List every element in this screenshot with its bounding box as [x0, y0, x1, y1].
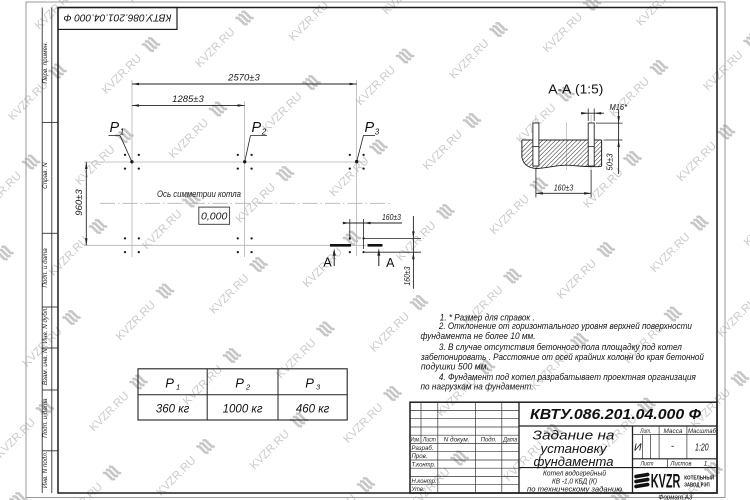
svg-text:по техническому заданию: по техническому заданию	[527, 485, 622, 494]
svg-text:Дата: Дата	[502, 436, 517, 443]
svg-text:1: 1	[704, 461, 708, 468]
svg-text:KVZR.RU: KVZR.RU	[73, 143, 117, 187]
svg-text:КВТУ.086.201.04.000 Ф: КВТУ.086.201.04.000 Ф	[530, 407, 702, 423]
svg-text:ЗАВОД РЭП: ЗАВОД РЭП	[684, 482, 710, 488]
svg-text:KVZR.RU: KVZR.RU	[648, 231, 692, 275]
svg-text:P: P	[165, 375, 174, 390]
svg-text:KVZR.RU: KVZR.RU	[608, 75, 652, 119]
svg-text:1: 1	[176, 382, 180, 391]
svg-text:KVZR.RU: KVZR.RU	[47, 234, 91, 278]
svg-text:подушки 500 мм.: подушки 500 мм.	[421, 362, 489, 372]
svg-text:KVZR.RU: KVZR.RU	[87, 390, 131, 434]
svg-text:фундамента: фундамента	[534, 454, 614, 469]
svg-text:360 кг: 360 кг	[156, 404, 190, 416]
svg-text:А: А	[386, 256, 395, 270]
svg-text:P: P	[305, 375, 314, 390]
svg-text:Пров.: Пров.	[412, 453, 428, 460]
svg-text:Формат А3: Формат А3	[658, 492, 692, 500]
svg-text:1:20: 1:20	[695, 442, 709, 454]
svg-text:3: 3	[316, 382, 321, 391]
svg-text:2570±3: 2570±3	[227, 73, 260, 84]
svg-text:2. Отклонение от горизонтал: 2. Отклонение от горизонтального уровня …	[438, 321, 692, 331]
svg-text:0,000: 0,000	[201, 211, 227, 223]
svg-text:Инв. N подл.: Инв. N подл.	[41, 451, 49, 488]
svg-text:KVZR.RU: KVZR.RU	[541, 11, 585, 55]
svg-text:KVZR.RU: KVZR.RU	[6, 79, 50, 123]
svg-text:KVZR.RU: KVZR.RU	[488, 193, 532, 237]
svg-text:KVZR.RU: KVZR.RU	[154, 454, 198, 498]
svg-text:Утв.: Утв.	[411, 486, 425, 493]
svg-text:KVZR.RU: KVZR.RU	[248, 428, 292, 472]
svg-text:-: -	[671, 441, 674, 452]
svg-text:Подп. и дата: Подп. и дата	[41, 248, 49, 288]
svg-text:50±3: 50±3	[605, 153, 615, 170]
svg-text:KVZR.RU: KVZR.RU	[167, 117, 211, 161]
svg-text:Ось симметрии котла: Ось симметрии котла	[157, 189, 241, 200]
svg-text:А: А	[323, 256, 332, 270]
svg-text:160±3: 160±3	[382, 212, 401, 222]
svg-text:P: P	[365, 120, 375, 136]
svg-text:KVZR.RU: KVZR.RU	[114, 299, 158, 343]
svg-text:2: 2	[245, 382, 251, 391]
svg-text:KVZR.RU: KVZR.RU	[368, 310, 412, 354]
svg-text:Инв. N дубл.: Инв. N дубл.	[41, 307, 49, 343]
svg-text:KVZR.RU: KVZR.RU	[100, 52, 144, 96]
svg-text:KVZR.RU: KVZR.RU	[555, 257, 599, 301]
svg-text:Н.контр.: Н.контр.	[412, 478, 437, 485]
svg-text:KVZR.RU: KVZR.RU	[207, 272, 251, 316]
svg-text:А-А (1:5): А-А (1:5)	[548, 83, 603, 97]
svg-text:4. Фундамент под котел раз: 4. Фундамент под котел разрабатывает про…	[439, 372, 696, 382]
svg-text:3: 3	[375, 127, 380, 136]
svg-text:N докум.: N докум.	[444, 435, 470, 443]
svg-text:Взам. инв. N: Взам. инв. N	[42, 348, 49, 385]
svg-text:KVZR.RU: KVZR.RU	[0, 416, 38, 460]
svg-text:P: P	[110, 120, 120, 136]
svg-text:KVZR: KVZR	[651, 471, 681, 492]
svg-text:по нагрузкам на фундамент.: по нагрузкам на фундамент.	[421, 382, 534, 392]
svg-text:KVZR.RU: KVZR.RU	[126, 0, 170, 6]
svg-text:960±3: 960±3	[74, 189, 85, 216]
svg-text:Листов: Листов	[670, 461, 692, 468]
svg-text:забетонировать . Расстояние: забетонировать . Расстояние от осей край…	[420, 352, 704, 362]
svg-text:KVZR.RU: KVZR.RU	[341, 401, 385, 445]
svg-text:Разраб.: Разраб.	[412, 444, 434, 452]
svg-text:Масса: Масса	[664, 428, 683, 435]
svg-text:160±3: 160±3	[554, 182, 574, 192]
svg-text:1: 1	[120, 127, 124, 136]
svg-text:KVZR.RU: KVZR.RU	[701, 49, 745, 93]
svg-text:KVZR.RU: KVZR.RU	[380, 0, 424, 17]
svg-text:Лист: Лист	[422, 436, 436, 443]
svg-text:KVZR.RU: KVZR.RU	[287, 0, 331, 44]
svg-text:KVZR.RU: KVZR.RU	[260, 90, 304, 134]
svg-text:Изм.: Изм.	[411, 436, 421, 443]
svg-text:KVZR.RU: KVZR.RU	[421, 128, 465, 172]
svg-text:KVZR.RU: KVZR.RU	[634, 0, 678, 29]
svg-text:P: P	[235, 375, 244, 390]
svg-text:160±3: 160±3	[402, 266, 412, 285]
svg-text:Масштаб: Масштаб	[688, 427, 717, 435]
svg-text:КОТЕЛЬНЫЙ: КОТЕЛЬНЫЙ	[684, 474, 714, 482]
svg-text:P: P	[252, 120, 262, 136]
svg-text:KVZR.RU: KVZR.RU	[354, 64, 398, 108]
svg-text:И: И	[634, 441, 642, 453]
svg-text:KVZR.RU: KVZR.RU	[447, 37, 491, 81]
svg-text:KVZR.RU: KVZR.RU	[675, 140, 719, 184]
svg-text:3. В случае отсутствия бет: 3. В случае отсутствия бетонного пола пл…	[439, 342, 682, 352]
svg-text:Перв. примен.: Перв. примен.	[42, 42, 49, 84]
svg-text:KVZR.RU: KVZR.RU	[394, 219, 438, 263]
svg-text:1000 кг: 1000 кг	[223, 404, 263, 416]
svg-text:Т.контр.: Т.контр.	[412, 461, 436, 468]
svg-text:Лист: Лист	[640, 461, 654, 468]
svg-text:KVZR.RU: KVZR.RU	[0, 170, 24, 214]
svg-text:KVZR.RU: KVZR.RU	[728, 0, 750, 2]
svg-text:Справ. N: Справ. N	[42, 162, 49, 189]
svg-text:KVZR.RU: KVZR.RU	[193, 26, 237, 70]
svg-text:KVZR.RU: KVZR.RU	[181, 363, 225, 407]
svg-text:Подп.: Подп.	[481, 435, 497, 443]
svg-text:фундамента не более 10 мм.: фундамента не более 10 мм.	[421, 331, 536, 341]
svg-text:KVZR.RU: KVZR.RU	[715, 295, 750, 339]
svg-text:КВТУ.086.201.04.000 Ф: КВТУ.086.201.04.000 Ф	[64, 12, 172, 23]
svg-text:460 кг: 460 кг	[296, 404, 330, 416]
svg-text:Лит.: Лит.	[640, 428, 652, 435]
svg-text:1285±3: 1285±3	[172, 94, 204, 105]
svg-text:KVZR.RU: KVZR.RU	[742, 204, 750, 248]
svg-text:Подп. и дата: Подп. и дата	[41, 398, 49, 438]
